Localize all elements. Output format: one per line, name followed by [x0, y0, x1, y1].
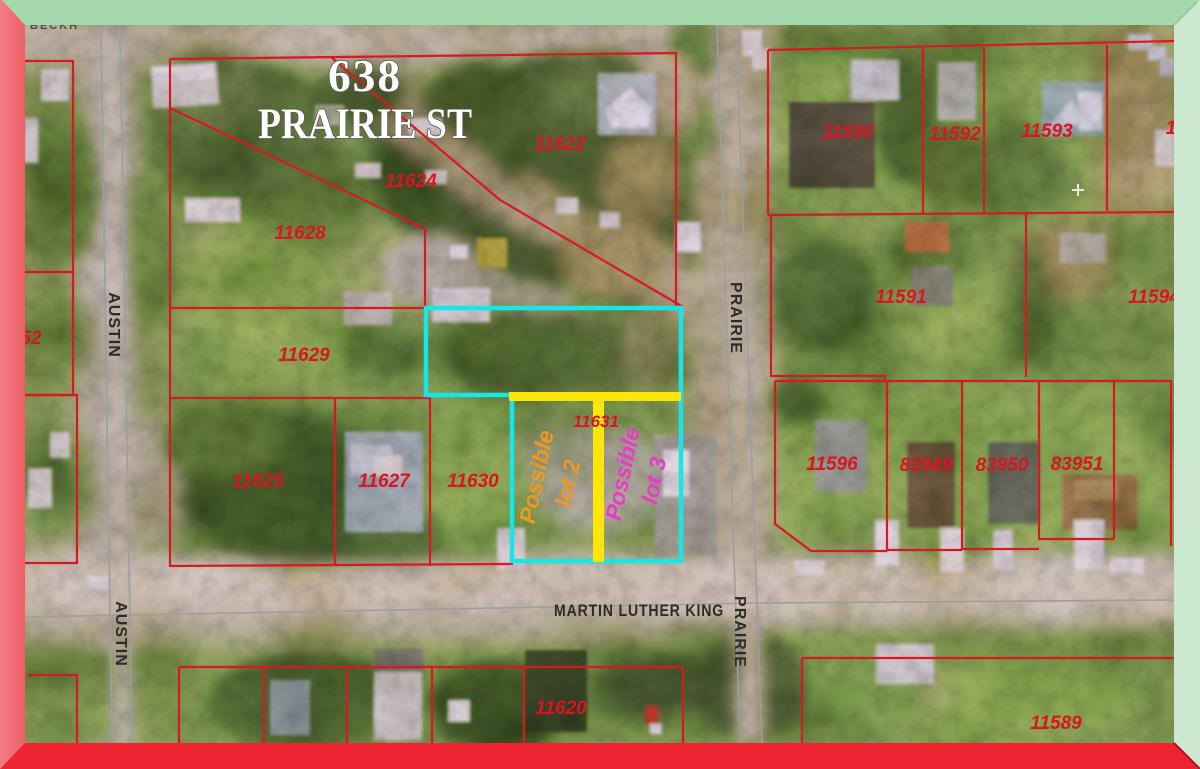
svg-text:638: 638: [328, 50, 402, 101]
svg-text:11620: 11620: [535, 698, 587, 719]
svg-text:83949: 83949: [900, 455, 953, 476]
svg-text:11628: 11628: [274, 223, 326, 244]
svg-text:AUSTIN: AUSTIN: [105, 292, 122, 358]
svg-text:11630: 11630: [447, 471, 499, 492]
svg-text:11629: 11629: [278, 345, 330, 366]
svg-text:AUSTIN: AUSTIN: [112, 601, 129, 667]
svg-text:11594: 11594: [1128, 287, 1180, 308]
svg-text:11631: 11631: [573, 412, 619, 431]
svg-text:MARTIN LUTHER KING: MARTIN LUTHER KING: [554, 601, 724, 620]
svg-text:11596: 11596: [806, 454, 858, 475]
svg-text:11589: 11589: [1030, 713, 1082, 734]
svg-text:11627: 11627: [358, 471, 411, 492]
svg-text:11624: 11624: [385, 171, 437, 192]
svg-text:PRAIRIE ST: PRAIRIE ST: [258, 101, 472, 148]
svg-text:83950: 83950: [976, 455, 1029, 476]
svg-text:PRAIRIE: PRAIRIE: [727, 282, 744, 354]
svg-text:11590: 11590: [822, 122, 874, 143]
svg-text:11592: 11592: [929, 124, 981, 145]
svg-text:11591: 11591: [875, 287, 926, 308]
svg-text:PRAIRIE: PRAIRIE: [731, 596, 748, 668]
svg-text:83951: 83951: [1051, 454, 1104, 475]
svg-text:11622: 11622: [534, 134, 586, 155]
svg-text:11625: 11625: [232, 471, 284, 492]
svg-text:11593: 11593: [1021, 121, 1073, 142]
